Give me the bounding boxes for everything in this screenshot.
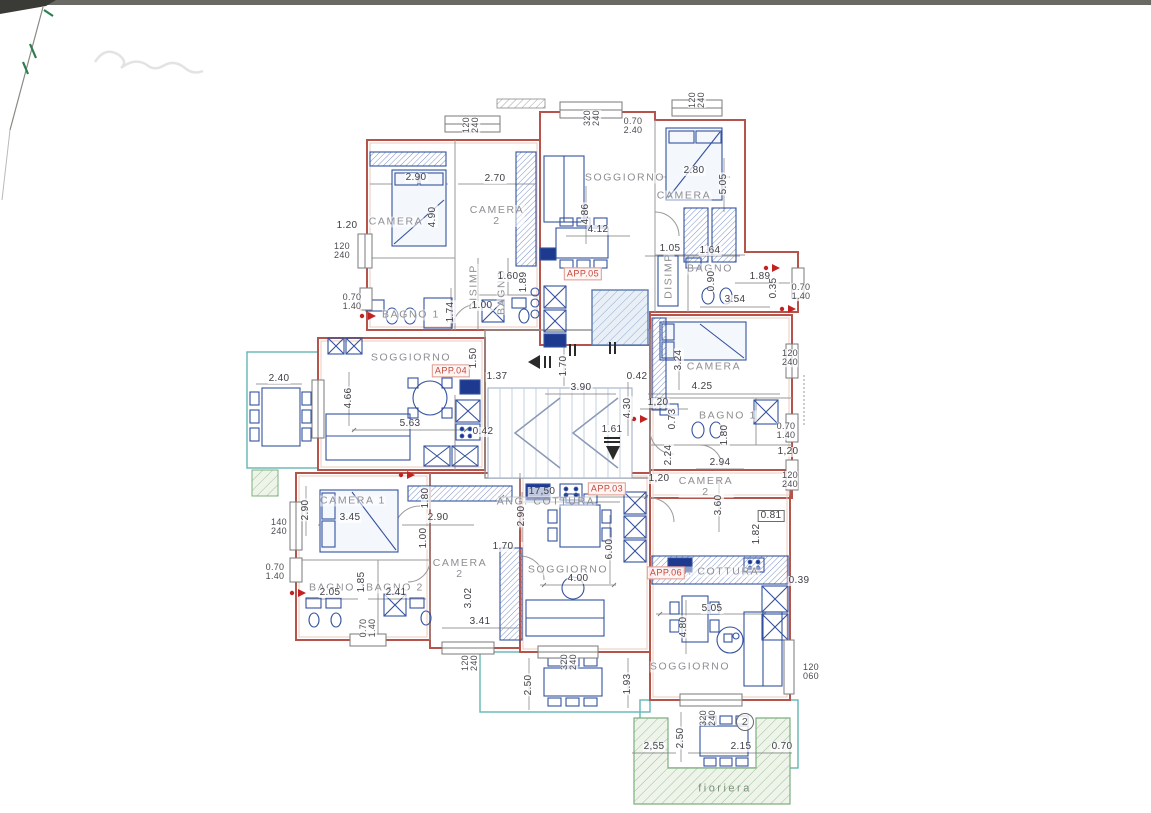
dining-table-round <box>408 378 452 418</box>
hatch-strip <box>497 99 545 108</box>
terrace-table <box>250 388 311 446</box>
wardrobe <box>652 318 666 410</box>
sofa <box>526 600 604 636</box>
side-table-round <box>562 577 584 599</box>
floor-plan-drawing <box>0 0 1151 813</box>
bed-double <box>320 490 398 552</box>
bed-double <box>660 322 746 360</box>
scan-artifacts <box>0 0 1151 200</box>
sofa <box>544 156 584 222</box>
wardrobe <box>370 152 446 166</box>
elevator <box>592 290 648 345</box>
dining-table <box>670 596 719 642</box>
planter-fioriera <box>634 718 790 804</box>
sofa <box>744 612 782 686</box>
wardrobe <box>408 486 512 501</box>
faint-handwriting <box>95 52 203 73</box>
sofa <box>326 414 410 460</box>
wardrobe <box>516 152 536 266</box>
bed-double <box>666 128 722 200</box>
wardrobe <box>712 208 736 262</box>
dining-table <box>556 218 608 268</box>
scanned-floor-plan-sheet: CAMERACAMERA 2SOGGIORNOCAMERABAGNODISIMP… <box>0 0 1151 813</box>
bed-double <box>392 170 446 246</box>
armchair-round <box>717 627 743 653</box>
wardrobe <box>684 208 708 262</box>
terrace-table <box>700 716 748 766</box>
wardrobe <box>500 548 522 640</box>
planter-left <box>252 470 278 496</box>
terrace-table <box>544 658 602 706</box>
